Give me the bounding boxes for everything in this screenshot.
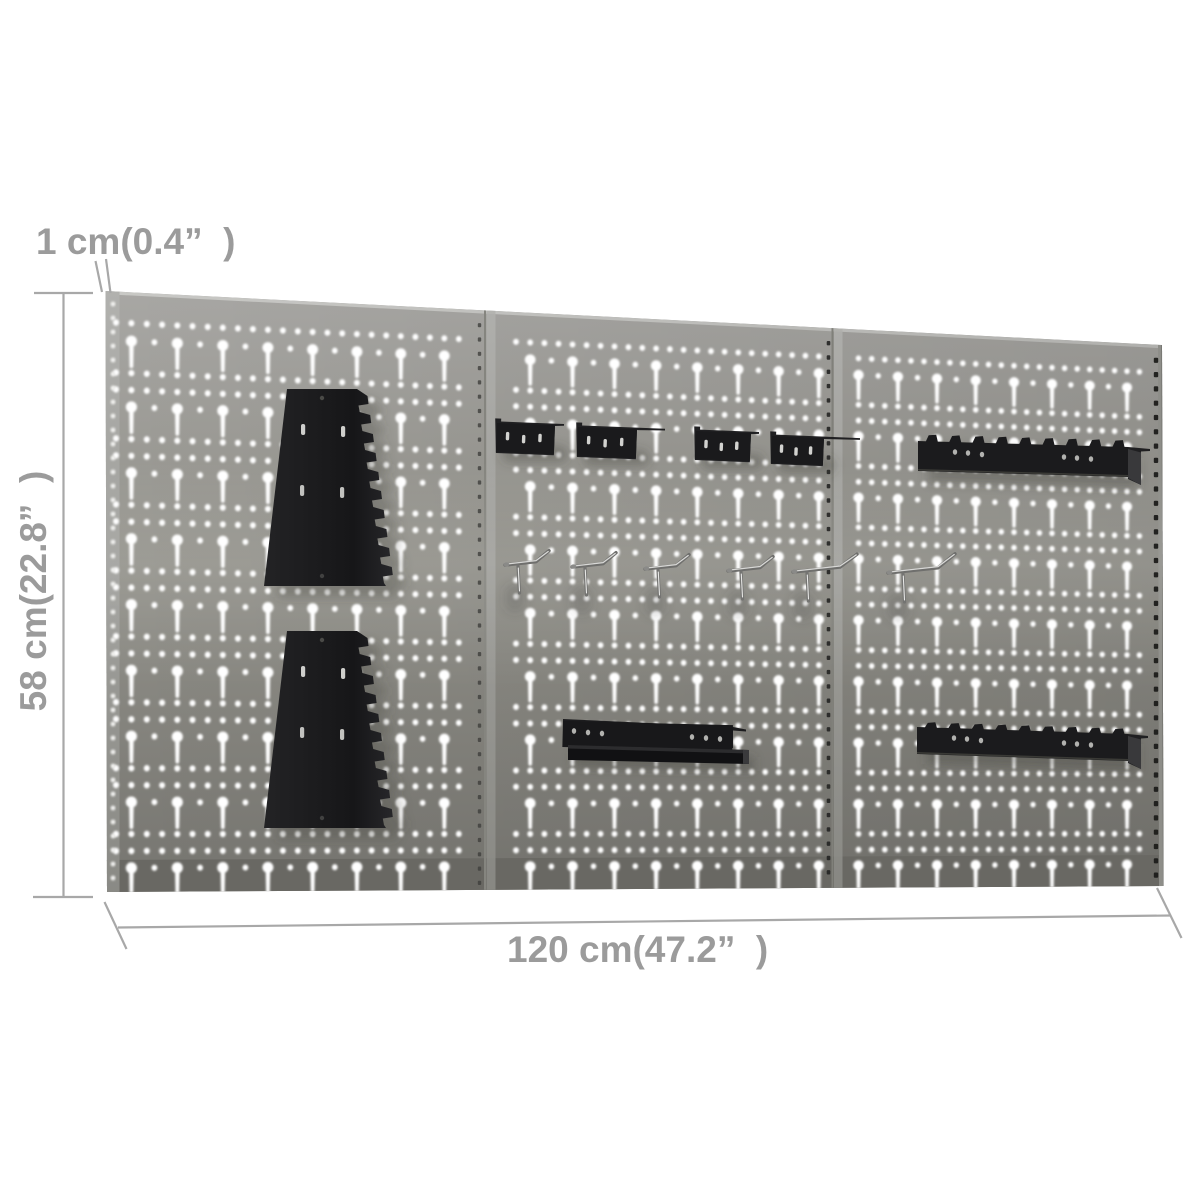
svg-text:58 cm(22.8” ): 58 cm(22.8” )	[13, 471, 54, 712]
svg-text:1 cm(0.4” ): 1 cm(0.4” )	[36, 221, 235, 262]
svg-text:120 cm(47.2” ): 120 cm(47.2” )	[507, 929, 768, 970]
